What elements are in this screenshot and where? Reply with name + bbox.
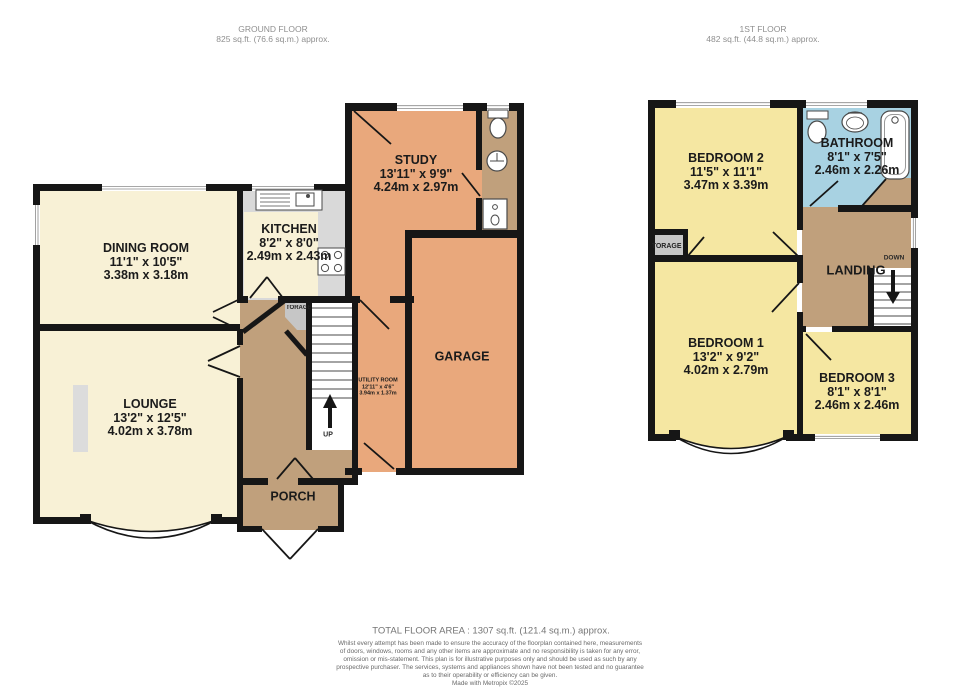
room-name: LOUNGE bbox=[108, 398, 193, 412]
ground-floor-area: 825 sq.ft. (76.6 sq.m.) approx. bbox=[216, 34, 329, 44]
room-dim-metric: 2.49m x 2.43m bbox=[247, 250, 332, 264]
room-dim-metric: 2.46m x 2.26m bbox=[815, 164, 900, 178]
room-dim-imperial: 11'5" x 11'1" bbox=[684, 165, 769, 179]
floorplan-canvas bbox=[0, 0, 980, 688]
room-dim-imperial: 8'2" x 8'0" bbox=[247, 236, 332, 250]
room-dim-imperial: 8'1" x 8'1" bbox=[815, 385, 900, 399]
first-floor-header: 1ST FLOOR 482 sq.ft. (44.8 sq.m.) approx… bbox=[706, 24, 819, 44]
credit-line: Made with Metropix ©2025 bbox=[336, 680, 644, 688]
room-label-kitchen: KITCHEN 8'2" x 8'0" 2.49m x 2.43m bbox=[247, 223, 332, 264]
room-label-bedroom3: BEDROOM 3 8'1" x 8'1" 2.46m x 2.46m bbox=[815, 372, 900, 413]
room-dim-metric: 2.46m x 2.46m bbox=[815, 399, 900, 413]
room-name: STUDY bbox=[374, 154, 459, 168]
room-name: GARAGE bbox=[435, 350, 490, 364]
room-name: KITCHEN bbox=[247, 223, 332, 237]
room-name: BATHROOM bbox=[815, 137, 900, 151]
room-dim-metric: 3.38m x 3.18m bbox=[103, 269, 189, 283]
lounge-bay-window bbox=[80, 512, 222, 538]
room-dim-metric: 4.02m x 2.79m bbox=[684, 364, 769, 378]
bedroom1-bay-window bbox=[669, 429, 794, 454]
room-dim-metric: 4.24m x 2.97m bbox=[374, 181, 459, 195]
kitchen-sink-icon bbox=[256, 190, 322, 210]
room-dim-imperial: 11'1" x 10'5" bbox=[103, 255, 189, 269]
room-dim-imperial: 8'1" x 7'5" bbox=[815, 150, 900, 164]
room-label-dining: DINING ROOM 11'1" x 10'5" 3.38m x 3.18m bbox=[103, 242, 189, 283]
room-label-landing: LANDING bbox=[826, 263, 885, 277]
room-name: PORCH bbox=[270, 490, 315, 504]
room-label-utility: UTILITY ROOM 12'11" x 4'6" 3.94m x 1.37m bbox=[358, 377, 397, 397]
ground-floor-title: GROUND FLOOR bbox=[216, 24, 329, 34]
first-floor-area: 482 sq.ft. (44.8 sq.m.) approx. bbox=[706, 34, 819, 44]
toilet-icon-ground bbox=[488, 110, 508, 138]
down-label: DOWN bbox=[884, 255, 905, 262]
disclaimer-line: prospective purchaser. The services, sys… bbox=[336, 664, 644, 672]
room-dim-imperial: 13'2" x 12'5" bbox=[108, 411, 193, 425]
basin-icon-bathroom bbox=[842, 112, 868, 132]
room-name: UTILITY ROOM bbox=[358, 377, 397, 384]
room-dim-imperial: 13'11" x 9'9" bbox=[374, 167, 459, 181]
room-dim-metric: 3.94m x 1.37m bbox=[358, 390, 397, 397]
room-label-bedroom1: BEDROOM 1 13'2" x 9'2" 4.02m x 2.79m bbox=[684, 337, 769, 378]
disclaimer-line: of doors, windows, rooms and any other i… bbox=[336, 648, 644, 656]
total-floor-area: TOTAL FLOOR AREA : 1307 sq.ft. (121.4 sq… bbox=[372, 626, 609, 637]
room-dim-imperial: 13'2" x 9'2" bbox=[684, 350, 769, 364]
up-label: UP bbox=[323, 432, 333, 439]
room-dim-metric: 4.02m x 3.78m bbox=[108, 425, 193, 439]
room-label-bedroom2: BEDROOM 2 11'5" x 11'1" 3.47m x 3.39m bbox=[684, 152, 769, 193]
room-label-study: STUDY 13'11" x 9'9" 4.24m x 2.97m bbox=[374, 154, 459, 195]
room-label-bathroom: BATHROOM 8'1" x 7'5" 2.46m x 2.26m bbox=[815, 137, 900, 178]
ground-floor-header: GROUND FLOOR 825 sq.ft. (76.6 sq.m.) app… bbox=[216, 24, 329, 44]
room-label-lounge: LOUNGE 13'2" x 12'5" 4.02m x 3.78m bbox=[108, 398, 193, 439]
floorplan-page: GROUND FLOOR 825 sq.ft. (76.6 sq.m.) app… bbox=[0, 0, 980, 688]
room-label-storage-first: STORAGE bbox=[652, 243, 685, 250]
room-name: STORAGE bbox=[652, 243, 682, 250]
disclaimer-line: as to their operability or efficiency ca… bbox=[336, 672, 644, 680]
disclaimer-line: omission or mis-statement. This plan is … bbox=[336, 656, 644, 664]
room-name: BEDROOM 1 bbox=[684, 337, 769, 351]
room-dim-metric: 3.47m x 3.39m bbox=[684, 179, 769, 193]
disclaimer-line: Whilst every attempt has been made to en… bbox=[336, 640, 644, 648]
disclaimer: Whilst every attempt has been made to en… bbox=[336, 640, 644, 688]
basin-icon-ground bbox=[487, 151, 507, 171]
room-label-storage-ground: STORAGE bbox=[287, 305, 311, 311]
sink-icon-ground bbox=[483, 199, 507, 229]
room-label-garage: GARAGE bbox=[435, 350, 490, 364]
room-name: STORAGE bbox=[287, 305, 311, 311]
room-name: DINING ROOM bbox=[103, 242, 189, 256]
first-floor-title: 1ST FLOOR bbox=[706, 24, 819, 34]
room-name: BEDROOM 2 bbox=[684, 152, 769, 166]
room-name: BEDROOM 3 bbox=[815, 372, 900, 386]
room-label-porch: PORCH bbox=[270, 490, 315, 504]
room-name: LANDING bbox=[826, 263, 885, 277]
